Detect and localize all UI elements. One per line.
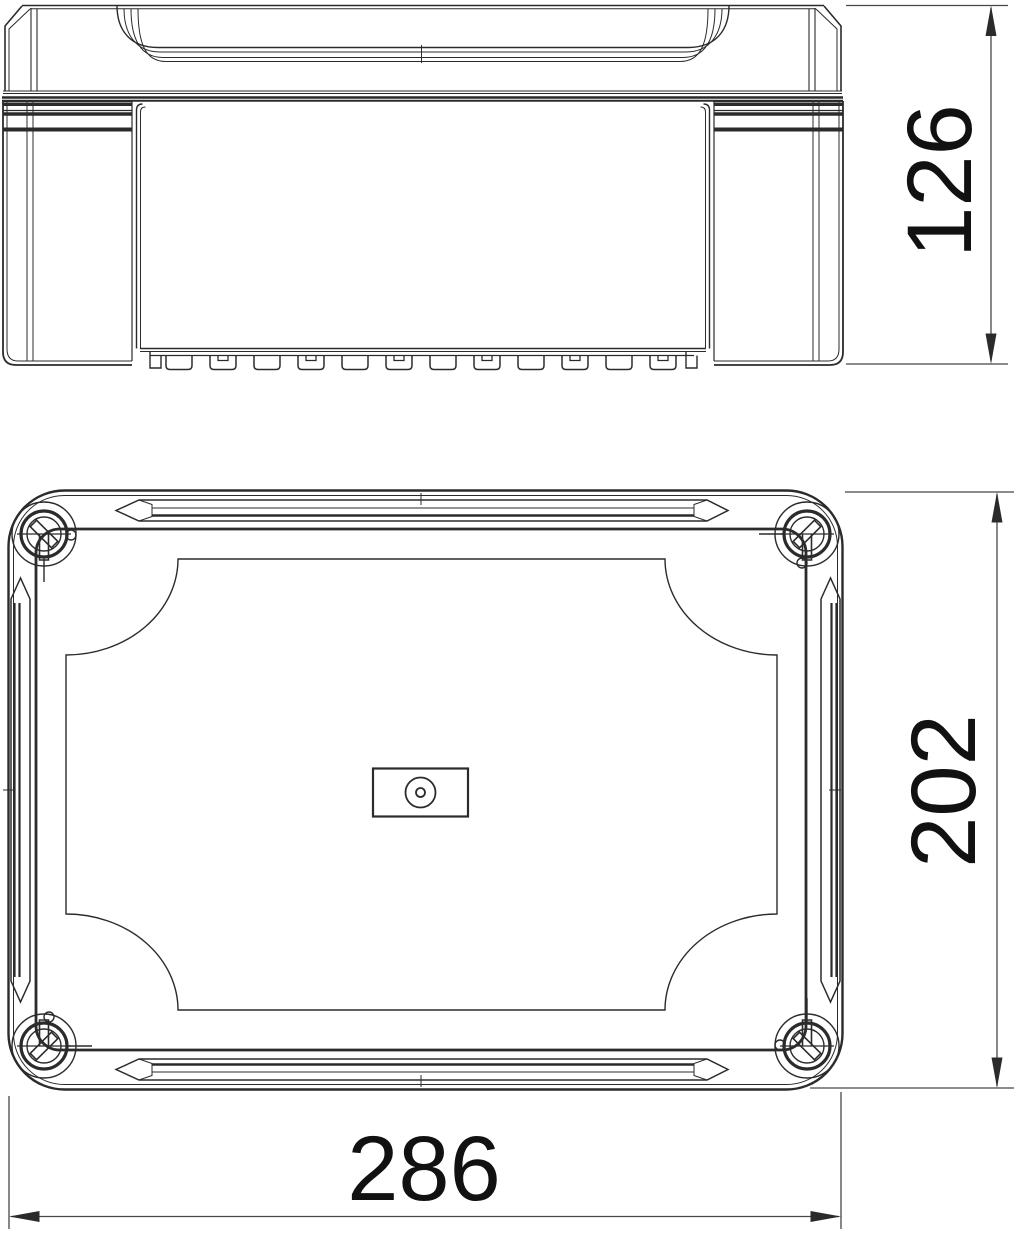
lid-left-edge-inner bbox=[9, 9, 30, 91]
dim-width-label: 286 bbox=[347, 1118, 501, 1220]
dim-height-label: 126 bbox=[889, 104, 991, 258]
top-view bbox=[3, 491, 843, 1090]
front-right-corner-block bbox=[714, 101, 843, 365]
grip-groove-bottom bbox=[116, 1059, 728, 1080]
technical-drawing-canvas: 126 202 286 bbox=[0, 0, 1024, 1244]
front-face-panel bbox=[137, 104, 710, 352]
grip-groove-top bbox=[116, 500, 728, 521]
plan-center-knockout bbox=[373, 769, 468, 817]
front-terminal-tabs bbox=[150, 352, 697, 370]
arrow-down-icon bbox=[986, 334, 997, 365]
arrow-up-icon bbox=[992, 492, 1003, 523]
arrow-left-icon bbox=[9, 1211, 40, 1222]
corner-screw-top-left bbox=[12, 502, 76, 582]
plan-lid-panel bbox=[66, 559, 777, 1010]
plan-outline bbox=[3, 491, 843, 1090]
front-lid bbox=[5, 6, 841, 92]
arrow-up-icon bbox=[986, 6, 997, 37]
front-joint-band bbox=[2, 91, 843, 101]
grip-groove-right bbox=[821, 578, 840, 1002]
dim-width: 286 bbox=[9, 1092, 841, 1229]
arrow-down-icon bbox=[992, 1058, 1003, 1089]
tab-end-left bbox=[150, 352, 161, 369]
corner-screw-top-right bbox=[759, 502, 839, 568]
corner-screw-bottom-left bbox=[12, 1012, 92, 1078]
lid-recess bbox=[117, 6, 729, 64]
dimension-drawing: 126 202 286 bbox=[0, 0, 1024, 1244]
corner-screw-bottom-right bbox=[775, 998, 839, 1078]
front-left-corner-block bbox=[3, 101, 132, 365]
dim-height: 126 bbox=[846, 6, 1008, 365]
lid-right-edge-inner bbox=[816, 9, 837, 91]
dim-depth-label: 202 bbox=[893, 714, 995, 868]
arrow-right-icon bbox=[811, 1211, 842, 1222]
front-view bbox=[2, 6, 843, 370]
plan-grip-grooves bbox=[11, 500, 840, 1080]
tab-end-right bbox=[686, 352, 697, 369]
grip-groove-left bbox=[11, 578, 30, 1002]
